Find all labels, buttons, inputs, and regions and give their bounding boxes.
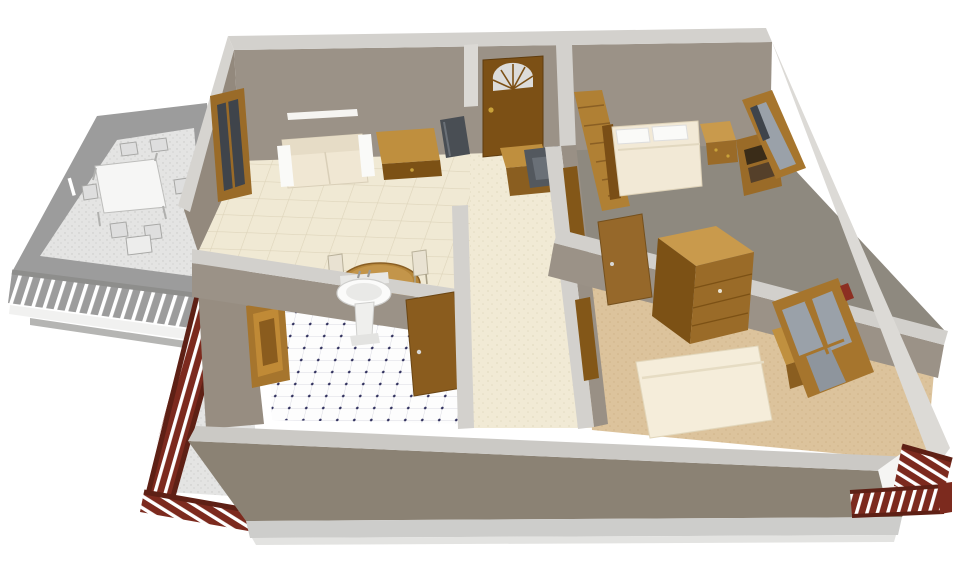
bathroom-door: [406, 292, 462, 396]
wood-desk: [376, 128, 442, 180]
entry-wall-stub: [464, 44, 478, 107]
corner-railing-post: [938, 482, 952, 514]
bathroom-window: [246, 298, 290, 388]
sink-basin: [346, 283, 382, 301]
render-canvas[interactable]: [0, 0, 960, 575]
bedroom2-door: [598, 214, 652, 305]
master-bed-pillow-1: [616, 128, 650, 144]
bathroom-door-knob: [417, 350, 421, 354]
master-bed-pillow-2: [652, 125, 688, 141]
master-bed: [602, 121, 702, 200]
chest-of-drawers: [652, 226, 754, 344]
bathroom-door-leaf: [406, 292, 462, 396]
chest-knob: [718, 289, 722, 293]
front-door-knob: [488, 107, 493, 112]
sink-pedestal: [355, 302, 374, 338]
front-door: [483, 56, 543, 157]
desk-knob: [410, 168, 414, 172]
chest-front: [690, 252, 754, 344]
loveseat: [277, 134, 375, 188]
floor-plan-3d-render[interactable]: [0, 0, 960, 575]
porch-dining-table: [95, 159, 166, 213]
desk-top: [376, 128, 440, 164]
